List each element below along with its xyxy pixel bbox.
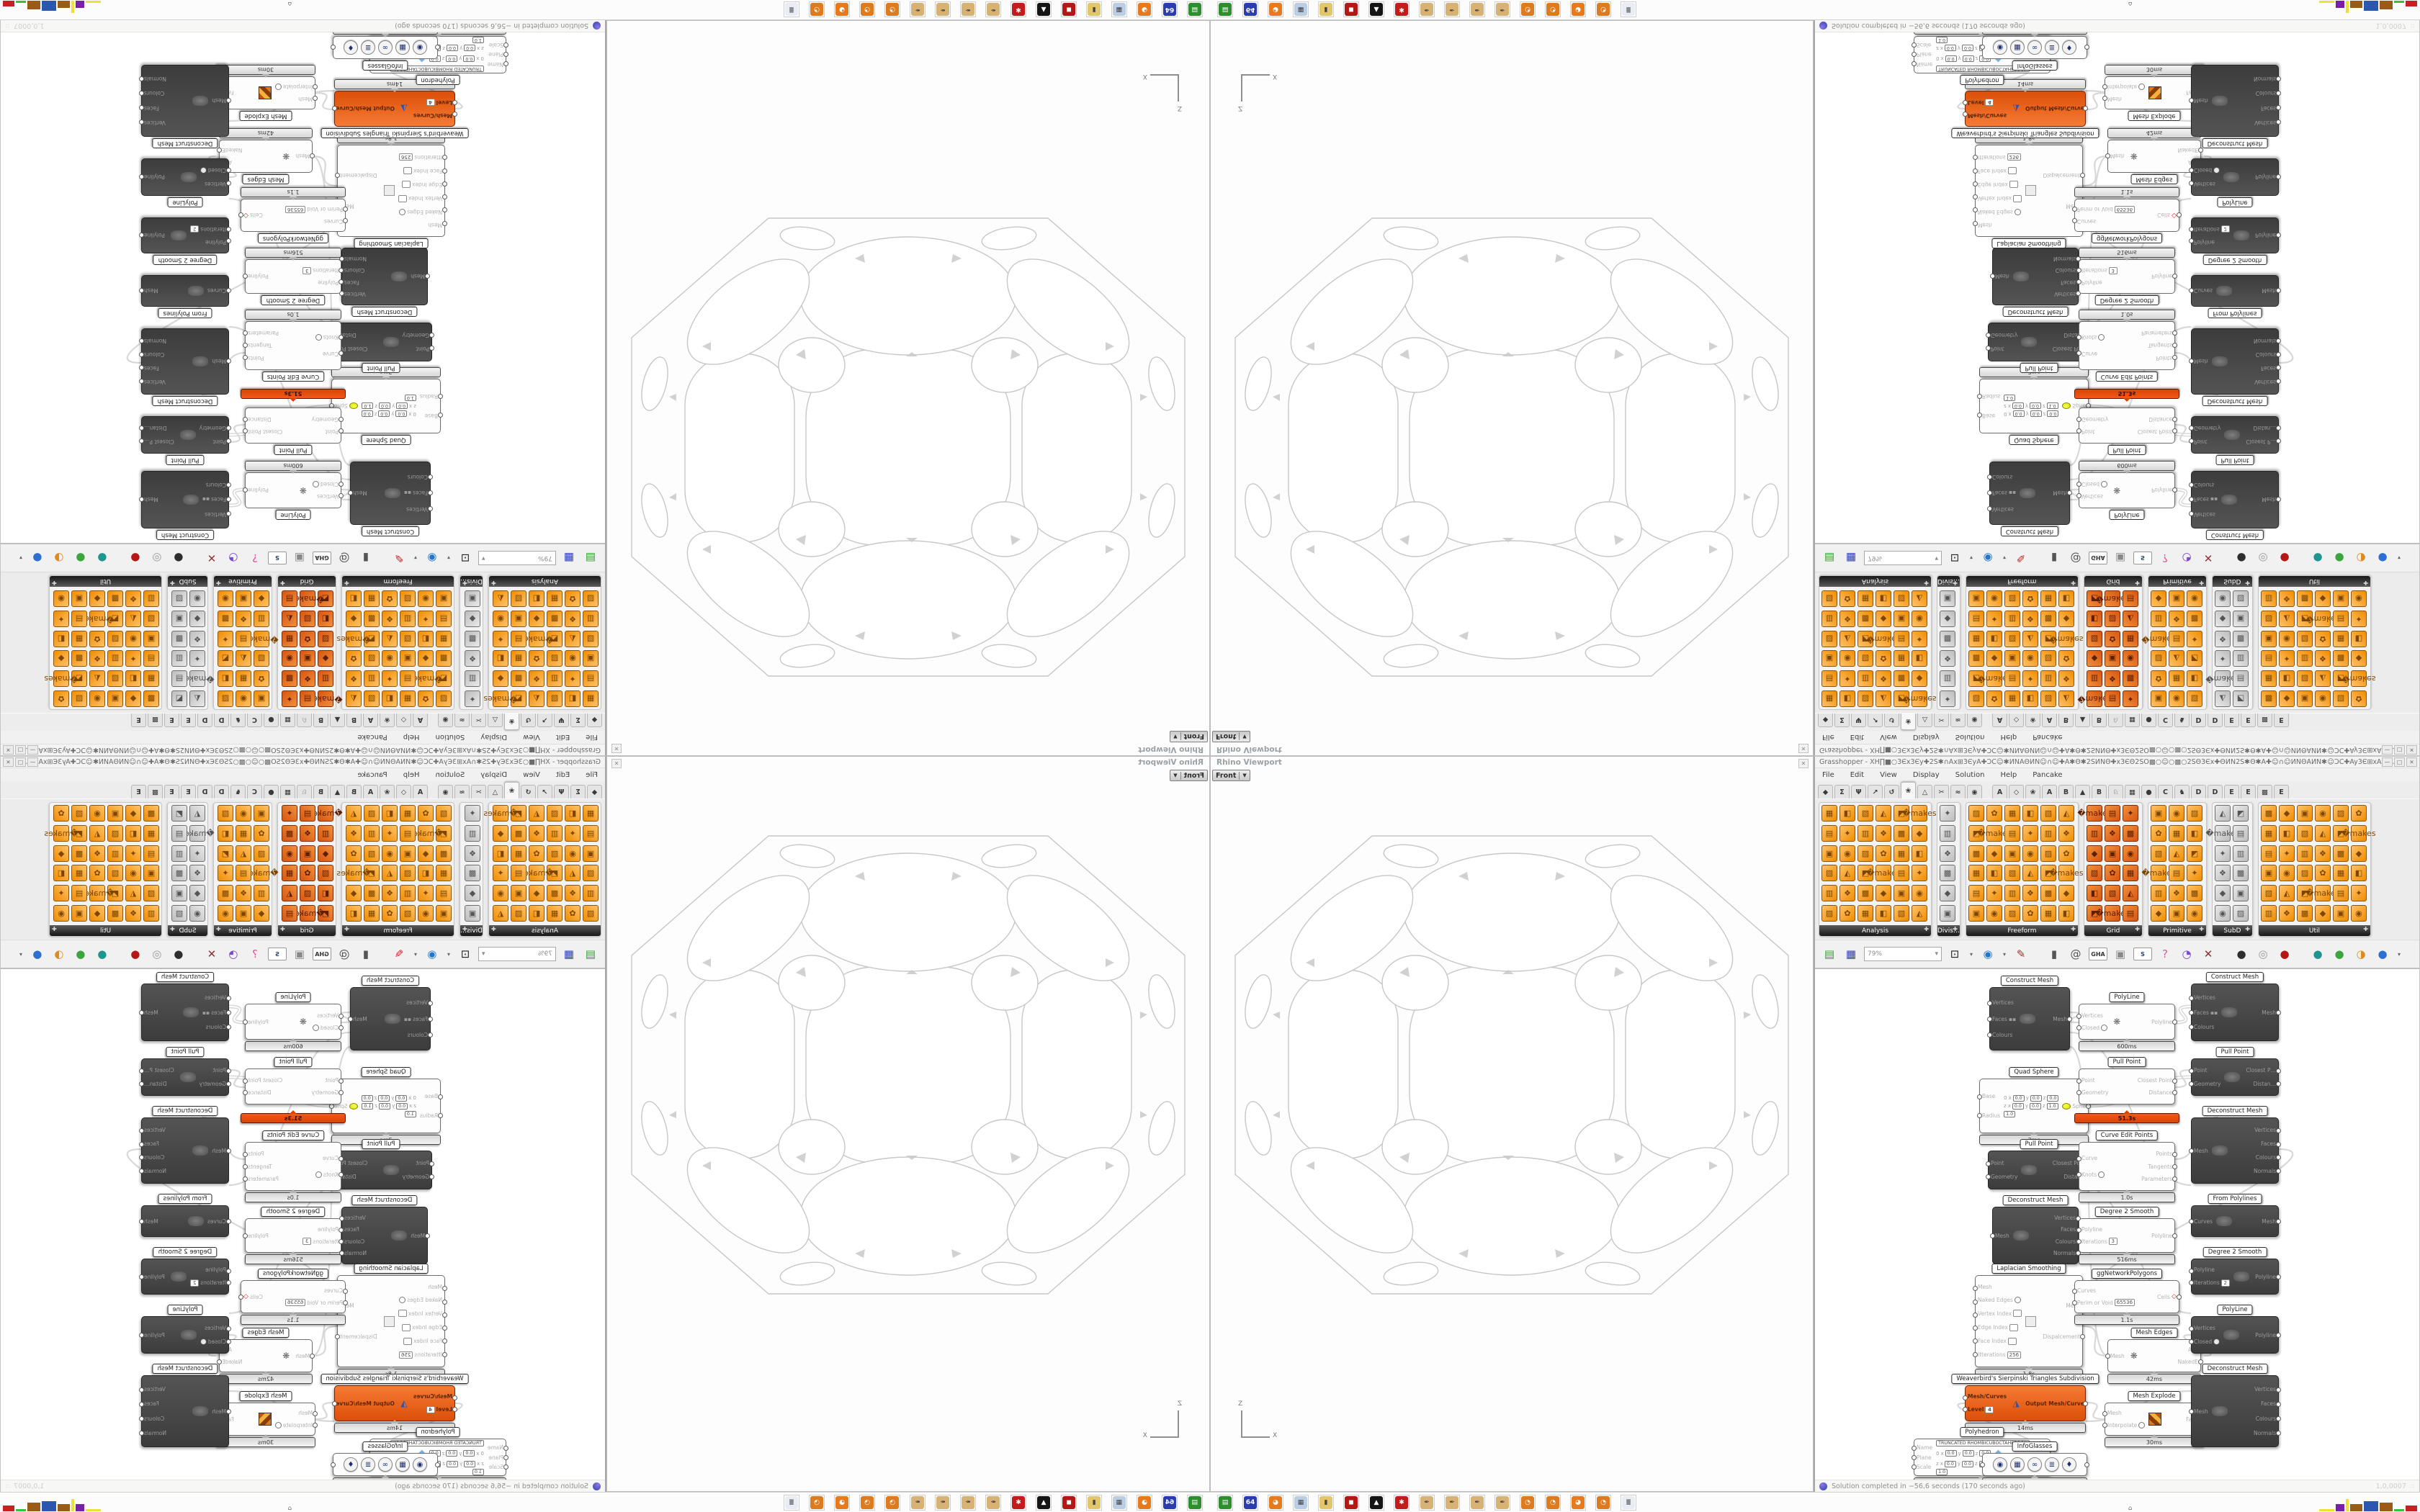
component-icon[interactable]: ▦ (364, 590, 380, 607)
menu-item-pancake[interactable]: Pancake (2033, 734, 2062, 742)
component-icon[interactable]: ◭ (2279, 885, 2295, 901)
dark-cup-icon[interactable]: ● (170, 549, 187, 567)
plugin-tab[interactable]: D (2208, 785, 2223, 798)
component-icon[interactable]: ▦ (2123, 631, 2138, 647)
ribbon-group-label[interactable]: Primitive✚ (2148, 576, 2206, 587)
component-icon[interactable]: ▣ (107, 805, 123, 822)
component-icon[interactable]: ◆ (529, 885, 544, 901)
menu-item-solution[interactable]: Solution (436, 734, 465, 742)
gh-node-polyline[interactable]: VerticesClosedPolyline (2191, 158, 2279, 196)
green-drive-icon[interactable]: ▤ (1217, 1, 1233, 17)
component-icon[interactable]: ▣ (171, 611, 187, 627)
component-icon[interactable]: ◧ (529, 590, 544, 607)
viewport-front-tab[interactable]: Front ▼ (1212, 731, 1250, 742)
plugin-tab[interactable]: ◇ (2009, 714, 2024, 727)
ribbon-group-label[interactable]: Grid✚ (2084, 576, 2142, 587)
crossing-arrows-icon[interactable]: ✕ (203, 549, 220, 567)
minimize-button[interactable]: — (27, 745, 38, 755)
gh-node-deconstruct-mesh[interactable]: MeshVerticesFacesColoursNormals (141, 1117, 229, 1184)
component-icon[interactable]: ▣ (2233, 611, 2249, 627)
palette-icon[interactable]: ✒ (1469, 1, 1485, 17)
component-icon[interactable]: ▣ (2105, 650, 2120, 667)
notepad-icon[interactable]: ≣ (1621, 1495, 1636, 1511)
component-icon[interactable]: ✿ (346, 845, 362, 862)
component-icon[interactable]: ▣ (2105, 845, 2120, 862)
ribbon-tab[interactable]: ✂ (1934, 714, 1949, 727)
component-icon[interactable]: ▩ (107, 590, 123, 607)
component-icon[interactable]: ◭ (2058, 690, 2074, 707)
caret[interactable]: ▾ (412, 945, 419, 963)
component-icon[interactable]: ◧ (218, 825, 233, 842)
gh-node-deconstruct-mesh[interactable]: MeshVerticesFacesColoursNormals (2191, 65, 2279, 137)
gh-node-pull-point[interactable]: PointGeometryClosest PointDistance (1988, 1151, 2090, 1189)
plugin-tab[interactable]: D (2191, 714, 2206, 727)
component-icon[interactable]: ▧ (1894, 905, 1909, 922)
component-icon[interactable]: ▣ (2151, 805, 2166, 822)
at-icon[interactable]: @ (2067, 945, 2084, 963)
red-cylinder-icon[interactable]: ● (2276, 549, 2293, 567)
gh-node-construct-mesh[interactable]: VerticesFaces▪▪ColoursMesh (141, 471, 229, 528)
plugin-tab[interactable]: ❀ (2025, 785, 2040, 798)
blue-sphere-icon[interactable]: ● (29, 945, 46, 963)
white-cylinder-icon[interactable]: ◎ (2254, 549, 2272, 567)
component-icon[interactable]: ✿ (1986, 690, 2002, 707)
component-icon[interactable]: ◭ (1875, 805, 1891, 822)
save-icon[interactable]: ▦ (560, 945, 578, 963)
blender-icon[interactable]: ◔ (884, 1495, 900, 1511)
component-icon[interactable]: ▤ (2333, 885, 2349, 901)
component-icon[interactable]: ◩ (2233, 805, 2249, 822)
component-icon[interactable]: ✦ (2187, 865, 2202, 881)
firefox-icon[interactable]: ◕ (1137, 1495, 1152, 1511)
component-icon[interactable]: ▧ (300, 611, 315, 627)
plugin-tab[interactable]: ▦ (280, 714, 295, 727)
component-icon[interactable]: ✿ (382, 590, 398, 607)
component-icon[interactable]: �makes (300, 590, 315, 607)
component-icon[interactable]: ▨ (1968, 805, 1984, 822)
component-icon[interactable]: �makes (189, 825, 205, 842)
frame-icon[interactable]: ⊡ (457, 549, 474, 567)
gh-node-deconstruct-mesh[interactable]: MeshVerticesFacesColoursNormals (2191, 328, 2279, 395)
component-icon[interactable]: ▤ (2233, 825, 2249, 842)
component-icon[interactable]: ◆ (53, 650, 69, 667)
component-icon[interactable]: ✿ (2351, 805, 2367, 822)
component-icon[interactable]: �makes (1875, 631, 1891, 647)
teal-sphere-icon[interactable]: ● (94, 549, 111, 567)
blender-icon[interactable]: ◔ (1545, 1495, 1561, 1511)
at-icon[interactable]: @ (2067, 549, 2084, 567)
white-cylinder-icon[interactable]: ◎ (148, 945, 166, 963)
component-icon[interactable]: ◉ (493, 611, 508, 627)
palette-icon[interactable]: ✒ (935, 1495, 951, 1511)
zoom-input[interactable]: 79%▾ (1864, 551, 1942, 565)
component-icon[interactable]: ✦ (53, 885, 69, 901)
component-icon[interactable]: ▦ (583, 690, 599, 707)
caret[interactable]: ▾ (17, 549, 24, 567)
gh-node-laplacian-smoothing[interactable]: MeshNaked EdgesVertex Index Edge Index F… (337, 1275, 445, 1367)
component-icon[interactable]: �makes (2215, 825, 2231, 842)
blender-icon[interactable]: ◔ (1545, 1, 1561, 17)
component-icon[interactable]: ▦ (436, 631, 452, 647)
component-icon[interactable]: ◉ (53, 590, 69, 607)
cat-icon[interactable]: ▲ (1368, 1495, 1384, 1511)
component-icon[interactable]: ◉ (125, 865, 141, 881)
component-icon[interactable]: �makes (1875, 865, 1891, 881)
component-icon[interactable]: ▥ (2151, 611, 2166, 627)
infoglasses-toggle[interactable]: ◉ (413, 40, 427, 55)
component-icon[interactable]: ◆ (1986, 650, 2002, 667)
ribbon-tab[interactable]: △ (1917, 714, 1932, 727)
menu-item-edit[interactable]: Edit (556, 771, 570, 779)
ribbon-tab[interactable]: ↺ (1884, 714, 1899, 727)
component-icon[interactable]: ◆ (529, 611, 544, 627)
component-icon[interactable]: ▥ (107, 650, 123, 667)
component-icon[interactable]: ▣ (2297, 805, 2313, 822)
gh-node-weaverbird-s-sierpinski-triangles-subdivision[interactable]: Mesh/CurvesLevel4◮Output Mesh/Curves (334, 91, 455, 127)
plugin-tab[interactable]: B (2058, 785, 2074, 798)
gh-node-polyline[interactable]: VerticesClosed❋Polyline (245, 1004, 341, 1040)
plugin-tab[interactable]: D (2208, 714, 2223, 727)
component-icon[interactable]: ▦ (2040, 590, 2056, 607)
ribbon-tab[interactable]: ◆ (587, 785, 602, 798)
menu-item-help[interactable]: Help (2000, 771, 2017, 779)
menu-item-file[interactable]: File (586, 734, 598, 742)
gh-node-degree-2-smooth[interactable]: PolylineIterations3Polyline (245, 1218, 341, 1253)
component-icon[interactable]: ▤ (2123, 905, 2138, 922)
plugin-tab[interactable]: D (2191, 785, 2206, 798)
component-icon[interactable]: ◩ (218, 650, 233, 667)
door-icon[interactable]: ▮ (2045, 549, 2063, 567)
component-icon[interactable]: ❖ (89, 845, 105, 862)
component-icon[interactable]: ◭ (2123, 885, 2138, 901)
component-icon[interactable]: ◭ (236, 845, 251, 862)
component-icon[interactable]: ▧ (400, 865, 416, 881)
component-icon[interactable]: ◉ (493, 885, 508, 901)
component-icon[interactable]: ▨ (2187, 690, 2202, 707)
component-icon[interactable]: �makes (2058, 865, 2074, 881)
ribbon-tab[interactable]: ↺ (521, 785, 536, 798)
gh-node-laplacian-smoothing[interactable]: MeshNaked EdgesVertex Index Edge Index F… (337, 145, 445, 237)
component-icon[interactable]: ◉ (565, 650, 581, 667)
ribbon-tab[interactable]: ✂ (471, 785, 486, 798)
component-icon[interactable]: ✿ (2151, 825, 2166, 842)
ribbon-tab[interactable]: ↺ (521, 714, 536, 727)
component-icon[interactable]: ▩ (107, 905, 123, 922)
plugin-tab[interactable]: ❀ (380, 714, 395, 727)
component-icon[interactable]: ◆ (1940, 611, 1955, 627)
component-icon[interactable]: ◉ (1986, 905, 2002, 922)
palette-icon[interactable]: ✒ (960, 1495, 976, 1511)
ribbon-tab[interactable]: △ (1917, 785, 1932, 798)
component-icon[interactable]: ◆ (465, 885, 480, 901)
ribbon-group-label[interactable]: Util✚ (2259, 925, 2370, 936)
component-icon[interactable]: ❖ (236, 611, 251, 627)
component-icon[interactable]: ▧ (547, 805, 563, 822)
plugin-tab[interactable]: A (413, 714, 428, 727)
component-icon[interactable]: ▧ (300, 885, 315, 901)
red-cylinder-icon[interactable]: ● (127, 945, 144, 963)
folder-icon[interactable]: ▮ (1318, 1, 1334, 17)
caret[interactable]: ▾ (1968, 945, 1975, 963)
component-icon[interactable]: ❖ (125, 590, 141, 607)
palette-icon[interactable]: ✒ (1494, 1495, 1510, 1511)
component-icon[interactable]: ✦ (2279, 650, 2295, 667)
component-icon[interactable]: ▩ (282, 825, 297, 842)
component-icon[interactable]: ◭ (189, 805, 205, 822)
ribbon-tab[interactable]: ↗ (537, 785, 552, 798)
component-icon[interactable]: ▤ (2105, 690, 2120, 707)
component-icon[interactable]: ▣ (2169, 905, 2184, 922)
component-icon[interactable]: ▩ (1894, 670, 1909, 687)
resize-grip-icon[interactable]: ∷ (5, 23, 9, 30)
firefox-icon[interactable]: ◕ (1570, 1495, 1586, 1511)
plugin-tab[interactable]: ♞ (230, 785, 246, 798)
component-icon[interactable]: ◭ (1875, 690, 1891, 707)
rhino-viewport[interactable]: Rhino Viewport ✕ Front ▼ (606, 756, 1210, 1492)
component-icon[interactable]: �makes (300, 905, 315, 922)
component-icon[interactable]: ▨ (1968, 690, 1984, 707)
ribbon-tab[interactable]: Σ (1834, 714, 1850, 727)
component-icon[interactable]: ◧ (125, 670, 141, 687)
component-icon[interactable]: ✿ (2022, 590, 2038, 607)
component-icon[interactable]: ▩ (1940, 631, 1955, 647)
caret[interactable]: ▾ (2001, 945, 2008, 963)
component-icon[interactable]: ❖ (529, 825, 544, 842)
component-icon[interactable]: ✿ (1839, 905, 1855, 922)
plugin-tab[interactable]: ▲ (2075, 785, 2090, 798)
component-icon[interactable]: ◩ (218, 845, 233, 862)
rhino-viewport[interactable]: Rhino Viewport ✕ Front ▼ (606, 20, 1210, 756)
component-icon[interactable]: ▦ (436, 865, 452, 881)
component-icon[interactable]: ▣ (2261, 865, 2277, 881)
component-icon[interactable]: ▤ (1968, 611, 1984, 627)
crossing-arrows-icon[interactable]: ✕ (203, 945, 220, 963)
node-canvas[interactable]: Construct MeshVerticesFaces▪▪ColoursMesh… (1815, 32, 2419, 544)
component-icon[interactable]: ✦ (1912, 631, 1927, 647)
ribbon-group-label[interactable]: SubD✚ (2213, 925, 2252, 936)
component-icon[interactable]: ✦ (465, 805, 480, 822)
component-icon[interactable]: ◆ (1875, 611, 1891, 627)
dark-cup-icon[interactable]: ● (2233, 945, 2250, 963)
balloon-icon[interactable]: ◔ (2178, 945, 2195, 963)
component-icon[interactable]: ▨ (218, 805, 233, 822)
menu-item-file[interactable]: File (586, 771, 598, 779)
component-icon[interactable]: ◧ (2279, 825, 2295, 842)
component-icon[interactable]: ▤ (2261, 650, 2277, 667)
component-icon[interactable]: ▨ (436, 690, 452, 707)
door-icon[interactable]: ▮ (357, 945, 375, 963)
component-icon[interactable]: ◆ (2087, 650, 2102, 667)
component-icon[interactable]: ▦ (282, 631, 297, 647)
component-icon[interactable]: ▣ (2233, 885, 2249, 901)
gh-node-pull-point[interactable]: PointGeometryClosest PointDistance (2079, 1068, 2175, 1104)
profiler-bar-selected[interactable]: 51.3s (2074, 1113, 2179, 1123)
component-icon[interactable]: ▣ (436, 590, 452, 607)
component-icon[interactable]: ▤ (143, 650, 159, 667)
component-icon[interactable]: ❖ (2105, 670, 2120, 687)
chevron-down-icon[interactable]: ▼ (1173, 734, 1177, 739)
plugin-tab[interactable]: E (131, 785, 146, 798)
component-icon[interactable]: �makes (89, 885, 105, 901)
plugin-tab[interactable]: A (413, 785, 428, 798)
plugin-tab[interactable]: E (2241, 714, 2256, 727)
pink-box-icon[interactable]: ? (246, 549, 264, 567)
component-icon[interactable]: �makes (1912, 690, 1927, 707)
component-icon[interactable]: ✦ (2123, 690, 2138, 707)
component-icon[interactable]: ◭ (346, 805, 362, 822)
menu-item-edit[interactable]: Edit (1850, 734, 1864, 742)
calculator-icon[interactable]: ▦ (1111, 1, 1127, 17)
component-icon[interactable]: ▤ (436, 885, 452, 901)
open-icon[interactable]: ▤ (582, 549, 599, 567)
ribbon-tab[interactable]: ↗ (1868, 714, 1883, 727)
sketch-pen-icon[interactable]: ✎ (2012, 549, 2030, 567)
component-icon[interactable]: �makes (493, 805, 508, 822)
component-icon[interactable]: ✦ (218, 631, 233, 647)
component-icon[interactable]: ▨ (2187, 805, 2202, 822)
component-icon[interactable]: ◉ (418, 905, 434, 922)
component-icon[interactable]: ▨ (2233, 905, 2249, 922)
component-icon[interactable]: ▨ (107, 865, 123, 881)
component-icon[interactable]: ✿ (565, 905, 581, 922)
component-icon[interactable]: ❖ (189, 865, 205, 881)
door-icon[interactable]: ▮ (357, 549, 375, 567)
infoglasses-toggle[interactable]: ≣ (2045, 1457, 2059, 1472)
red-cube-icon[interactable]: ◼ (1061, 1, 1077, 17)
blue-sphere-icon[interactable]: ● (2374, 549, 2391, 567)
component-icon[interactable]: ▤ (1894, 865, 1909, 881)
open-icon[interactable]: ▤ (1821, 549, 1838, 567)
infoglasses-toggle[interactable]: ◉ (1993, 40, 2007, 55)
red-gear-icon[interactable]: ✱ (1010, 1, 1026, 17)
component-icon[interactable]: ✦ (1986, 885, 2002, 901)
component-icon[interactable]: ✦ (2022, 670, 2038, 687)
ribbon-tab[interactable]: Σ (1834, 785, 1850, 798)
maximize-button[interactable]: □ (15, 757, 26, 767)
ribbon-group-label[interactable]: Divis…✚ (1937, 925, 1960, 936)
component-icon[interactable]: ▩ (511, 670, 526, 687)
component-icon[interactable]: ◭ (1839, 631, 1855, 647)
plugin-tab[interactable]: ● (2141, 785, 2156, 798)
component-icon[interactable]: ▩ (2297, 905, 2313, 922)
component-icon[interactable]: ▩ (2261, 805, 2277, 822)
component-icon[interactable]: ▥ (1940, 825, 1955, 842)
component-icon[interactable]: ▣ (71, 905, 87, 922)
component-icon[interactable]: ✿ (418, 690, 434, 707)
component-icon[interactable]: ◧ (2187, 670, 2202, 687)
component-icon[interactable]: ▨ (107, 631, 123, 647)
component-icon[interactable]: ◆ (2315, 590, 2331, 607)
component-icon[interactable]: ◧ (1875, 590, 1891, 607)
component-icon[interactable]: ❖ (1875, 670, 1891, 687)
half-sphere-icon[interactable]: ◑ (50, 549, 68, 567)
plugin-tab[interactable]: ♞ (2174, 714, 2190, 727)
gh-node-curve-edit-points[interactable]: CurveKnotsPointsTangentsParameters (2079, 1142, 2175, 1191)
component-icon[interactable]: ◭ (189, 690, 205, 707)
component-icon[interactable]: ▨ (1857, 650, 1873, 667)
component-icon[interactable]: �makes (418, 670, 434, 687)
gh-node-infoglasses[interactable]: ◉▦∞≣♦ (1982, 1453, 2087, 1476)
component-icon[interactable]: ▩ (2123, 825, 2138, 842)
plugin-tab[interactable]: ● (264, 785, 279, 798)
infoglasses-toggle[interactable]: ♦ (2062, 1457, 2076, 1472)
component-icon[interactable]: ❖ (189, 631, 205, 647)
component-icon[interactable]: �makes (1986, 670, 2002, 687)
component-icon[interactable]: ◆ (125, 690, 141, 707)
gh-node-from-polylines[interactable]: CurvesMesh (141, 1205, 229, 1237)
profiler-bar-selected[interactable]: 51.3s (241, 1113, 346, 1123)
ribbon-group-label[interactable]: Util✚ (2259, 576, 2370, 587)
ribbon-tab[interactable]: ↗ (537, 714, 552, 727)
infoglasses-toggle[interactable]: ♦ (344, 1457, 358, 1472)
gh-node-infoglasses[interactable]: ◉▦∞≣♦ (333, 36, 438, 59)
dark-cup-icon[interactable]: ● (170, 945, 187, 963)
ribbon-tab[interactable]: ◆ (587, 714, 602, 727)
teal-sphere-icon[interactable]: ● (94, 945, 111, 963)
component-icon[interactable]: ▩ (2297, 590, 2313, 607)
plugin-tab[interactable]: A (2042, 785, 2057, 798)
component-icon[interactable]: ▤ (2169, 631, 2184, 647)
sketch-pen-icon[interactable]: ✎ (390, 945, 408, 963)
component-icon[interactable]: ✿ (2022, 905, 2038, 922)
open-icon[interactable]: ▤ (582, 945, 599, 963)
gh-node-mesh-explode[interactable]: MeshInterpolateFaces (216, 76, 315, 109)
component-icon[interactable]: ▣ (171, 885, 187, 901)
maximize-button[interactable]: □ (2394, 757, 2405, 767)
menu-item-view[interactable]: View (1880, 734, 1897, 742)
ribbon-group-label[interactable]: Primitive✚ (214, 576, 272, 587)
gh-node-pull-point[interactable]: PointGeometryClosest P…Distan… (141, 1058, 229, 1096)
component-icon[interactable]: ▩ (2233, 631, 2249, 647)
component-icon[interactable]: ▦ (364, 905, 380, 922)
component-icon[interactable]: ▣ (107, 690, 123, 707)
gh-node-construct-mesh[interactable]: VerticesFaces▪▪ColoursMesh (350, 987, 431, 1050)
component-icon[interactable]: ▧ (2297, 825, 2313, 842)
component-icon[interactable]: ✿ (1839, 590, 1855, 607)
component-icon[interactable]: ▨ (318, 865, 333, 881)
gh-node-pull-point[interactable]: PointGeometryClosest P…Distan… (141, 416, 229, 454)
plugin-tab[interactable]: E (164, 714, 179, 727)
gh-node-pull-point[interactable]: PointGeometryClosest P…Distan… (2191, 416, 2279, 454)
ribbon-tab[interactable]: ◆ (1818, 714, 1833, 727)
menu-item-file[interactable]: File (1822, 734, 1834, 742)
component-icon[interactable]: ▤ (236, 865, 251, 881)
chevron-down-icon[interactable]: ▼ (1242, 734, 1246, 739)
close-button[interactable]: ✕ (2406, 757, 2417, 767)
teal-sphere-icon[interactable]: ● (2309, 945, 2326, 963)
menu-item-view[interactable]: View (523, 771, 540, 779)
component-icon[interactable]: ▨ (218, 690, 233, 707)
component-icon[interactable]: ▣ (254, 805, 269, 822)
component-icon[interactable]: �makes (1986, 825, 2002, 842)
component-icon[interactable]: ▧ (2040, 805, 2056, 822)
menu-item-pancake[interactable]: Pancake (357, 771, 387, 779)
menu-item-solution[interactable]: Solution (436, 771, 465, 779)
component-icon[interactable]: ▨ (547, 845, 563, 862)
component-icon[interactable]: ◭ (382, 865, 398, 881)
component-icon[interactable]: ▣ (583, 650, 599, 667)
component-icon[interactable]: ◆ (346, 885, 362, 901)
caret[interactable]: ▾ (2396, 549, 2403, 567)
plugin-tab[interactable]: ▲ (330, 785, 345, 798)
gh-node-quad-sphere[interactable]: BaseRadius0 x0.0y0.0z0.0z x0.0y0.0z1.01.… (331, 1079, 441, 1133)
component-icon[interactable]: ❖ (2169, 611, 2184, 627)
component-icon[interactable]: �makes (2105, 905, 2120, 922)
plugin-tab[interactable]: D (214, 785, 229, 798)
gh-node-mesh-edges[interactable]: Mesh❋AllENakedE (219, 1339, 313, 1372)
maximize-button[interactable]: □ (15, 745, 26, 755)
component-icon[interactable]: ▧ (1857, 690, 1873, 707)
